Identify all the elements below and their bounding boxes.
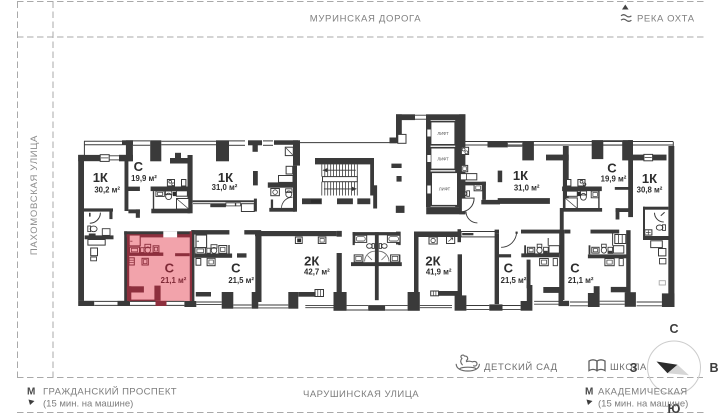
- svg-text:19,9 м²: 19,9 м²: [131, 174, 157, 183]
- svg-text:С: С: [570, 261, 580, 276]
- svg-text:МУРИНСКАЯ ДОРОГА: МУРИНСКАЯ ДОРОГА: [310, 14, 422, 25]
- svg-text:С: С: [504, 261, 514, 276]
- svg-text:С: С: [607, 161, 617, 176]
- svg-text:30,2 м²: 30,2 м²: [94, 186, 120, 195]
- svg-text:ДЕТСКИЙ САД: ДЕТСКИЙ САД: [484, 361, 558, 373]
- svg-text:ПАХОМОВСКАЯ УЛИЦА: ПАХОМОВСКАЯ УЛИЦА: [29, 135, 40, 255]
- svg-text:42,7 м²: 42,7 м²: [304, 268, 330, 277]
- svg-text:ЛИФТ: ЛИФТ: [437, 156, 449, 161]
- svg-text:19,9 м²: 19,9 м²: [601, 175, 627, 184]
- svg-text:ЛИФТ: ЛИФТ: [439, 187, 451, 192]
- svg-text:1К: 1К: [642, 171, 657, 186]
- svg-text:РЕКА ОХТА: РЕКА ОХТА: [637, 13, 695, 24]
- svg-text:ШКОЛА: ШКОЛА: [610, 362, 647, 373]
- svg-text:(15 мин. на машине): (15 мин. на машине): [598, 398, 688, 409]
- svg-text:З: З: [630, 361, 638, 375]
- svg-text:2К: 2К: [425, 254, 440, 269]
- svg-text:1К: 1К: [93, 170, 108, 185]
- svg-text:21,1 м²: 21,1 м²: [161, 276, 187, 285]
- svg-text:2К: 2К: [304, 254, 319, 269]
- svg-text:30,8 м²: 30,8 м²: [637, 186, 663, 195]
- svg-text:21,5 м²: 21,5 м²: [501, 276, 527, 285]
- svg-text:С: С: [134, 159, 144, 174]
- svg-text:АКАДЕМИЧЕСКАЯ: АКАДЕМИЧЕСКАЯ: [598, 387, 688, 398]
- svg-text:М: М: [27, 387, 35, 398]
- svg-text:31,0 м²: 31,0 м²: [212, 183, 238, 192]
- svg-text:ГРАЖДАНСКИЙ ПРОСПЕКТ: ГРАЖДАНСКИЙ ПРОСПЕКТ: [43, 386, 177, 398]
- svg-text:ЧАРУШИНСКАЯ УЛИЦА: ЧАРУШИНСКАЯ УЛИЦА: [303, 389, 419, 400]
- svg-text:31,0 м²: 31,0 м²: [514, 183, 540, 192]
- svg-text:1К: 1К: [513, 168, 528, 183]
- svg-text:С: С: [231, 261, 241, 276]
- svg-text:М: М: [585, 387, 593, 398]
- svg-text:С: С: [165, 260, 175, 275]
- svg-text:(15 мин. на машине): (15 мин. на машине): [43, 398, 133, 409]
- svg-text:41,9 м²: 41,9 м²: [426, 268, 452, 277]
- svg-text:С: С: [669, 322, 678, 336]
- svg-text:В: В: [709, 361, 718, 375]
- svg-text:21,1 м²: 21,1 м²: [568, 276, 594, 285]
- svg-text:21,5 м²: 21,5 м²: [228, 276, 254, 285]
- svg-text:ЛИФТ: ЛИФТ: [437, 131, 449, 136]
